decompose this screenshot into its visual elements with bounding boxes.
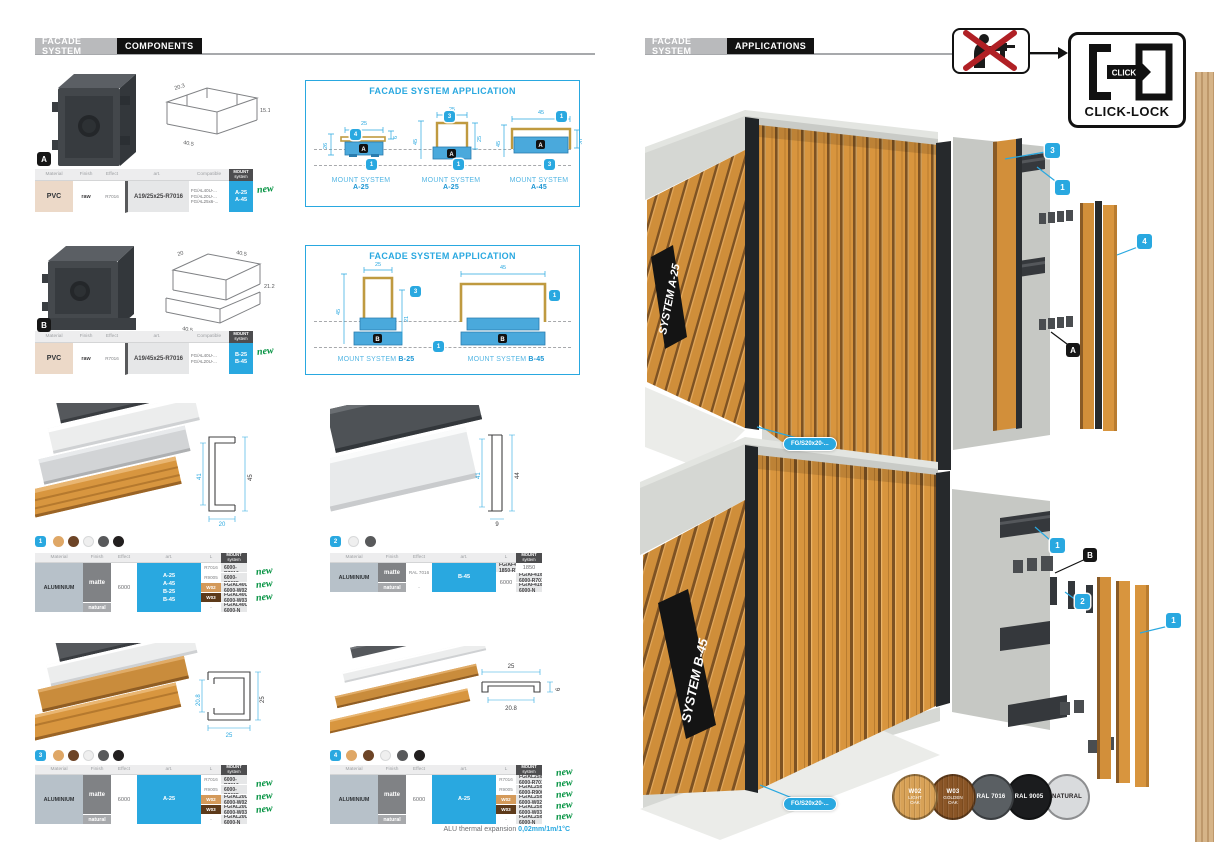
- dim-b-1: 20: [177, 250, 185, 258]
- cell-length: 6000: [111, 563, 137, 613]
- cell-effect: R7016: [99, 181, 125, 213]
- col-compatible: Compatible: [189, 169, 229, 181]
- color-dot: [348, 536, 359, 547]
- col-mount: MOUNTsystem: [516, 765, 542, 775]
- clip-id: A: [449, 152, 454, 158]
- dim-bottom: 20: [219, 522, 226, 527]
- profile-2-table: Material Finish Effect art. L MOUNTsyste…: [330, 553, 542, 593]
- cell-art: FG/AL20U-6000-R7016: [221, 775, 247, 785]
- dim-a-2: 40.5: [183, 140, 195, 148]
- callout-1: 1: [366, 159, 377, 170]
- cell-effect: R9005: [201, 573, 221, 583]
- click-lock-label: CLICK-LOCK: [1071, 104, 1183, 119]
- profile-4-table: Material Finish Effect art. L MOUNTsyste…: [330, 765, 542, 825]
- dim-a-1: 20.3: [174, 83, 186, 92]
- new-label: new: [256, 345, 274, 358]
- dim-top: 45: [500, 265, 506, 271]
- cell-finish-natural: natural: [83, 815, 111, 825]
- cell-effect: R7016: [496, 775, 516, 785]
- profile-3-drawing: 20.8 25 25: [192, 658, 264, 740]
- cell-effect: R7016: [201, 563, 221, 573]
- col-material: Material: [35, 169, 73, 181]
- cell-effect: R9005: [496, 785, 516, 795]
- part-label-pill[interactable]: FG/S20x20-...: [783, 437, 837, 451]
- cell-finish-matte: matte: [378, 775, 406, 815]
- right-brand: FACADE SYSTEM: [645, 38, 739, 54]
- component-b-table: Material Finish Effect art. Compatible M…: [35, 331, 253, 375]
- col-finish: Finish: [73, 331, 99, 343]
- component-a-id: A: [41, 155, 47, 164]
- dim-a-3: 15.1: [260, 108, 270, 114]
- col-mount: MOUNTsystem: [229, 169, 253, 181]
- new-label: new: [255, 803, 273, 816]
- mount-system-label: MOUNT SYSTEM B-25: [316, 356, 436, 363]
- dim-b-2: 40.5: [236, 250, 248, 258]
- callout-1: 1: [1055, 180, 1070, 195]
- cell-effect-w02: W02: [201, 795, 221, 805]
- cell-material: ALUMINIUM: [35, 775, 83, 825]
- callout-1: 1: [433, 341, 444, 352]
- component-b-photo: [42, 236, 147, 336]
- cell-art: FG/AL25x6-6000-W03: [516, 805, 542, 815]
- col-finish: Finish: [378, 765, 406, 775]
- cell-effect-w02: W02: [496, 795, 516, 805]
- color-dot: [113, 750, 124, 761]
- new-label: new: [256, 183, 274, 196]
- new-label: new: [255, 777, 273, 790]
- cell-effect-w03: W03: [201, 593, 221, 603]
- col-material: Material: [330, 765, 378, 775]
- cell-length: 1850: [516, 563, 542, 573]
- cell-compatible: FG/AL40U-...FG/AL20U-...FG/AL25x6-...: [189, 181, 229, 213]
- dim-right: 25: [260, 696, 264, 703]
- new-label: new: [255, 565, 273, 578]
- col-material: Material: [35, 331, 73, 343]
- col-mount: MOUNTsystem: [221, 765, 247, 775]
- callout-b: B: [1083, 548, 1097, 562]
- new-label: new: [255, 578, 273, 591]
- cell-material: PVC: [35, 343, 73, 375]
- color-dot: [83, 750, 94, 761]
- color-dot: [68, 750, 79, 761]
- col-material: Material: [35, 765, 83, 775]
- col-effect: Effect: [99, 331, 125, 343]
- profile-1-table: Material Finish Effect art. L MOUNTsyste…: [35, 553, 247, 613]
- profile-1-drawing: 41 45 20: [195, 425, 257, 527]
- application-box-a: FACADE SYSTEM APPLICATION A 25 26 6 A 25…: [305, 80, 580, 207]
- cell-effect: R9005: [201, 785, 221, 795]
- cell-art: FG/AL25x6-6000-R9005: [516, 785, 542, 795]
- cell-art: FG/AL20U-6000-N: [221, 815, 247, 825]
- cell-art: FG/AL40U-6000-W03: [221, 593, 247, 603]
- cell-finish-matte: matte: [83, 775, 111, 815]
- profile-2-badge: 2: [330, 536, 341, 547]
- component-b-id: B: [41, 321, 47, 330]
- cell-art: FG/AL40U-6000-N: [221, 603, 247, 613]
- cell-art: FG/AL40U-6000-R7016: [221, 563, 247, 573]
- cell-mount: A-25A-45B-25B-45: [137, 563, 201, 613]
- cell-material: PVC: [35, 181, 73, 213]
- callout-1: 1: [453, 159, 464, 170]
- col-effect: Effect: [406, 553, 432, 563]
- cell-art: FG/AF41x9-6000-N: [516, 583, 542, 593]
- color-dot: [380, 750, 391, 761]
- col-finish: Finish: [83, 553, 111, 563]
- cell-material: ALUMINIUM: [35, 563, 83, 613]
- callout-3: 3: [544, 159, 555, 170]
- cell-effect: R7016: [99, 343, 125, 375]
- clip-id: B: [375, 337, 380, 343]
- callout-4: 4: [350, 129, 361, 140]
- col-material: Material: [330, 553, 378, 563]
- callout-1: 1: [556, 111, 567, 122]
- cell-art: FG/AL20U-6000-W02: [221, 795, 247, 805]
- callout-2: 2: [1075, 594, 1090, 609]
- dim-right: 25: [477, 136, 483, 142]
- cell-effect: -: [406, 583, 432, 593]
- col-length: L: [201, 553, 221, 563]
- cell-art: FG/AF41x9-6000-R7016: [516, 573, 542, 583]
- profile-3-table: Material Finish Effect art. L MOUNTsyste…: [35, 765, 247, 825]
- col-mount: MOUNTsystem: [229, 331, 253, 343]
- cell-art: FG/AF41x9-1850-R7016: [496, 563, 516, 573]
- cell-effect: RAL 7016: [406, 563, 432, 583]
- dim-left: 20.8: [196, 694, 202, 706]
- cell-art: FG/AL20U-6000-R9005: [221, 785, 247, 795]
- cell-art: A19/45x25-R7016: [125, 343, 189, 375]
- color-dot: [113, 536, 124, 547]
- dim-right: 45: [248, 474, 254, 481]
- component-a-photo: [50, 66, 145, 171]
- dim-right: 20: [579, 139, 582, 145]
- component-b-id-badge: B: [37, 318, 51, 332]
- dim-top: 25: [375, 262, 381, 268]
- col-art: art.: [137, 553, 201, 563]
- dim-right: 21: [404, 316, 410, 322]
- cell-mount: B-45: [432, 563, 496, 593]
- cell-finish-matte: matte: [83, 563, 111, 603]
- click-lock-badge: CLICK CLICK-LOCK: [1068, 32, 1186, 128]
- callout-1: 1: [1166, 613, 1181, 628]
- new-label: new: [255, 591, 273, 604]
- color-dot: [346, 750, 357, 761]
- swatch-w02[interactable]: W02 LIGHT OAK: [892, 774, 938, 820]
- color-dot: [414, 750, 425, 761]
- render-system-a25: SYSTEM A-25: [645, 95, 1175, 470]
- cell-compatible: FG/AL40U-...FG/AL20U-...: [189, 343, 229, 375]
- cell-effect: R7016: [201, 775, 221, 785]
- thermal-expansion-note: ALU thermal expansion 0,02mm/1m/1°C: [380, 826, 570, 833]
- dim-right: 44: [515, 472, 521, 479]
- cell-effect: -: [201, 815, 221, 825]
- callout-1: 1: [549, 290, 560, 301]
- cell-art: FG/AL40U-6000-W02: [221, 583, 247, 593]
- dim-left: 41: [197, 473, 203, 480]
- cell-mount: A-25: [137, 775, 201, 825]
- mount-system-label: MOUNT SYSTEMA-25: [316, 177, 406, 191]
- click-label: CLICK: [1112, 69, 1137, 78]
- cell-finish-natural: natural: [378, 583, 406, 593]
- new-label: new: [255, 790, 273, 803]
- dim-left: 41: [476, 472, 482, 479]
- diagram-a25-strip: A 25 26 6: [321, 111, 401, 163]
- profile-2-drawing: 41 44 9: [470, 423, 528, 527]
- left-section-label: COMPONENTS: [125, 41, 194, 51]
- col-length: L: [201, 765, 221, 775]
- col-finish: Finish: [378, 553, 406, 563]
- cell-material: ALUMINIUM: [330, 563, 378, 593]
- cell-finish-natural: natural: [378, 815, 406, 825]
- callout-3: 3: [444, 111, 455, 122]
- application-box-b: FACADE SYSTEM APPLICATION B 25 45 21 B 4…: [305, 245, 580, 375]
- cell-finish: raw: [73, 181, 99, 213]
- cell-mount: A-25A-45: [229, 181, 253, 213]
- cell-length: 6000: [406, 775, 432, 825]
- clip-id: A: [361, 147, 366, 153]
- diagram-b25: B 25 45 21: [326, 260, 426, 355]
- component-b-drawing: 20 40.5 21.2 40.5: [148, 242, 278, 337]
- profile-3-badge: 3: [35, 750, 46, 761]
- clip-id: A: [538, 143, 543, 149]
- callout-a: A: [1066, 343, 1080, 357]
- col-art: art.: [137, 765, 201, 775]
- component-a-drawing: 20.3 40.5 15.1: [145, 80, 270, 165]
- right-section-tab[interactable]: APPLICATIONS: [727, 38, 814, 54]
- col-effect: Effect: [406, 765, 432, 775]
- col-material: Material: [35, 553, 83, 563]
- left-brand: FACADE SYSTEM: [35, 38, 129, 54]
- cell-art: FG/AL25x6-6000-W02: [516, 795, 542, 805]
- color-dot: [53, 750, 64, 761]
- left-section-tab[interactable]: COMPONENTS: [117, 38, 202, 54]
- cell-effect: -: [201, 603, 221, 613]
- dim-right: 6: [556, 687, 562, 691]
- callout-4: 4: [1137, 234, 1152, 249]
- cell-art: FG/AL20U-6000-W03: [221, 805, 247, 815]
- dim-bottom: 20.8: [505, 706, 517, 712]
- col-compatible: Compatible: [189, 331, 229, 343]
- mount-system-label: MOUNT SYSTEMA-45: [494, 177, 584, 191]
- col-length: L: [496, 553, 516, 563]
- mount-system-label: MOUNT SYSTEM B-45: [446, 356, 566, 363]
- col-mount: MOUNTsystem: [516, 553, 542, 563]
- col-effect: Effect: [111, 553, 137, 563]
- callout-1: 1: [1050, 538, 1065, 553]
- mount-system-label: MOUNT SYSTEMA-25: [406, 177, 496, 191]
- next-page-edge: [1195, 72, 1214, 842]
- no-drill-icon: [952, 28, 1030, 74]
- dim-right: 6: [393, 136, 399, 139]
- cell-art: FG/AL25x6-6000-R7016: [516, 775, 542, 785]
- dim-left: 45: [336, 309, 342, 315]
- cell-mount: A-25: [432, 775, 496, 825]
- col-art: art.: [432, 765, 496, 775]
- cell-finish-matte: matte: [378, 563, 406, 583]
- arrow-icon: [1028, 44, 1068, 62]
- right-brand-label: FACADE SYSTEM: [652, 36, 732, 56]
- right-section-label: APPLICATIONS: [735, 41, 806, 51]
- callout-3: 3: [410, 286, 421, 297]
- profile-4-drawing: 25 20.8 6: [460, 660, 565, 718]
- dim-b-3: 21.2: [264, 284, 275, 290]
- click-lock-icon: CLICK: [1083, 43, 1177, 101]
- col-art: art.: [125, 169, 189, 181]
- dim-left: 45: [413, 139, 419, 145]
- cell-art: FG/AL25x6-6000-N: [516, 815, 542, 825]
- cell-finish-natural: natural: [83, 603, 111, 613]
- diagram-a45-profile: A 45 45 20: [496, 105, 582, 163]
- cell-length: 6000: [111, 775, 137, 825]
- dim-bottom: 25: [226, 733, 233, 739]
- col-finish: Finish: [83, 765, 111, 775]
- color-dot: [397, 750, 408, 761]
- dim-left: 26: [323, 143, 329, 149]
- cell-effect: -: [496, 815, 516, 825]
- col-art: art.: [432, 553, 496, 563]
- dim-left: 45: [496, 141, 502, 147]
- color-dot: [83, 536, 94, 547]
- application-a-title: FACADE SYSTEM APPLICATION: [306, 86, 579, 96]
- col-length: L: [496, 765, 516, 775]
- dashed-line: [314, 165, 571, 166]
- color-dot: [365, 536, 376, 547]
- profile-1-badge: 1: [35, 536, 46, 547]
- left-brand-label: FACADE SYSTEM: [42, 36, 122, 56]
- dim-top: 45: [538, 110, 544, 116]
- diagram-b45: B 45: [441, 260, 566, 355]
- cell-mount: B-25B-45: [229, 343, 253, 375]
- color-dot: [363, 750, 374, 761]
- component-a-id-badge: A: [37, 152, 51, 166]
- profile-1-photo: [35, 403, 203, 531]
- profile-3-photo: [35, 643, 203, 751]
- col-effect: Effect: [111, 765, 137, 775]
- color-dot: [98, 750, 109, 761]
- profile-4-badge: 4: [330, 750, 341, 761]
- clip-id: B: [500, 337, 505, 343]
- cell-finish: raw: [73, 343, 99, 375]
- color-dot: [98, 536, 109, 547]
- cell-art: FG/AL40U-6000-R9005: [221, 573, 247, 583]
- cell-material: ALUMINIUM: [330, 775, 378, 825]
- cell-effect-w02: W02: [201, 583, 221, 593]
- callout-3: 3: [1045, 143, 1060, 158]
- cell-length: 6000: [496, 573, 516, 593]
- color-dot: [68, 536, 79, 547]
- color-dot: [53, 536, 64, 547]
- new-label: new: [555, 810, 573, 823]
- cell-effect-w03: W03: [201, 805, 221, 815]
- col-art: art.: [125, 331, 189, 343]
- part-label-pill[interactable]: FG/S20x20-...: [783, 797, 837, 811]
- cell-art: A19/25x25-R7016: [125, 181, 189, 213]
- catalog-page: FACADE SYSTEM COMPONENTS 20.3 40.5 15.1 …: [0, 0, 1214, 858]
- col-finish: Finish: [73, 169, 99, 181]
- dim-top: 25: [361, 121, 367, 127]
- cell-effect-w03: W03: [496, 805, 516, 815]
- dim-top: 25: [508, 664, 515, 670]
- col-mount: MOUNTsystem: [221, 553, 247, 563]
- col-effect: Effect: [99, 169, 125, 181]
- dim-bottom: 9: [495, 522, 499, 527]
- component-a-table: Material Finish Effect art. Compatible M…: [35, 169, 253, 213]
